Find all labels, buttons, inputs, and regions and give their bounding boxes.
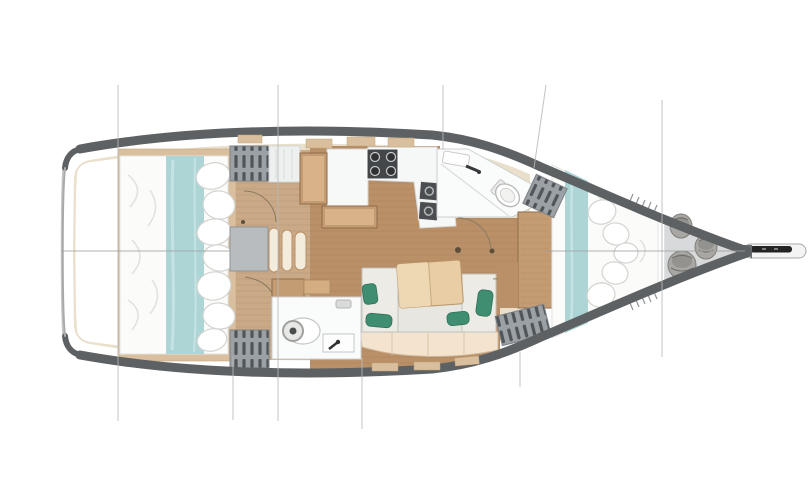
hanging-locker-aft-top	[230, 146, 269, 181]
toilet-aft	[283, 318, 320, 344]
stern-platform: Stern transom platform	[76, 158, 123, 346]
stair-step	[295, 232, 306, 270]
stove	[367, 149, 398, 179]
salon-table	[397, 260, 464, 308]
floor-patch	[498, 262, 518, 308]
hanging-locker-aft-bottom	[230, 330, 269, 368]
washbasin-aft	[323, 334, 354, 352]
door-hinge-dot	[241, 220, 245, 224]
anchor-roller	[750, 246, 792, 253]
stairs-landing	[230, 227, 268, 271]
settee	[360, 260, 498, 357]
station-line-slanted	[534, 85, 546, 168]
cabinet-panel	[269, 146, 300, 182]
head-cabinets	[272, 279, 330, 297]
door-hinge-dot	[490, 249, 495, 254]
yacht-floor-plan: Stern transom platform Aft cabin with fu…	[0, 0, 810, 500]
vent	[336, 300, 351, 308]
aft-cabin: Aft cabin with full-beam double berth	[118, 149, 237, 361]
mast-post-dot	[455, 247, 461, 253]
fridge-cabinet	[327, 149, 368, 206]
stair-step	[282, 230, 292, 271]
